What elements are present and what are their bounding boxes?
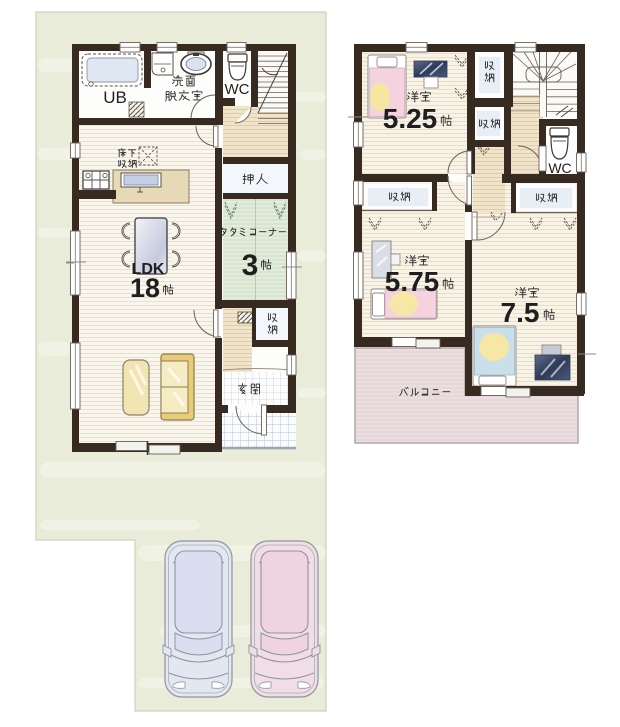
svg-text:18: 18 (130, 273, 160, 303)
svg-text:WC: WC (225, 81, 250, 98)
svg-text:WC: WC (548, 160, 571, 176)
svg-text:3: 3 (242, 249, 259, 282)
svg-text:5.25: 5.25 (383, 103, 438, 134)
svg-text:7.5: 7.5 (501, 297, 540, 328)
svg-text:UB: UB (103, 88, 127, 107)
svg-text:5.75: 5.75 (385, 266, 440, 297)
